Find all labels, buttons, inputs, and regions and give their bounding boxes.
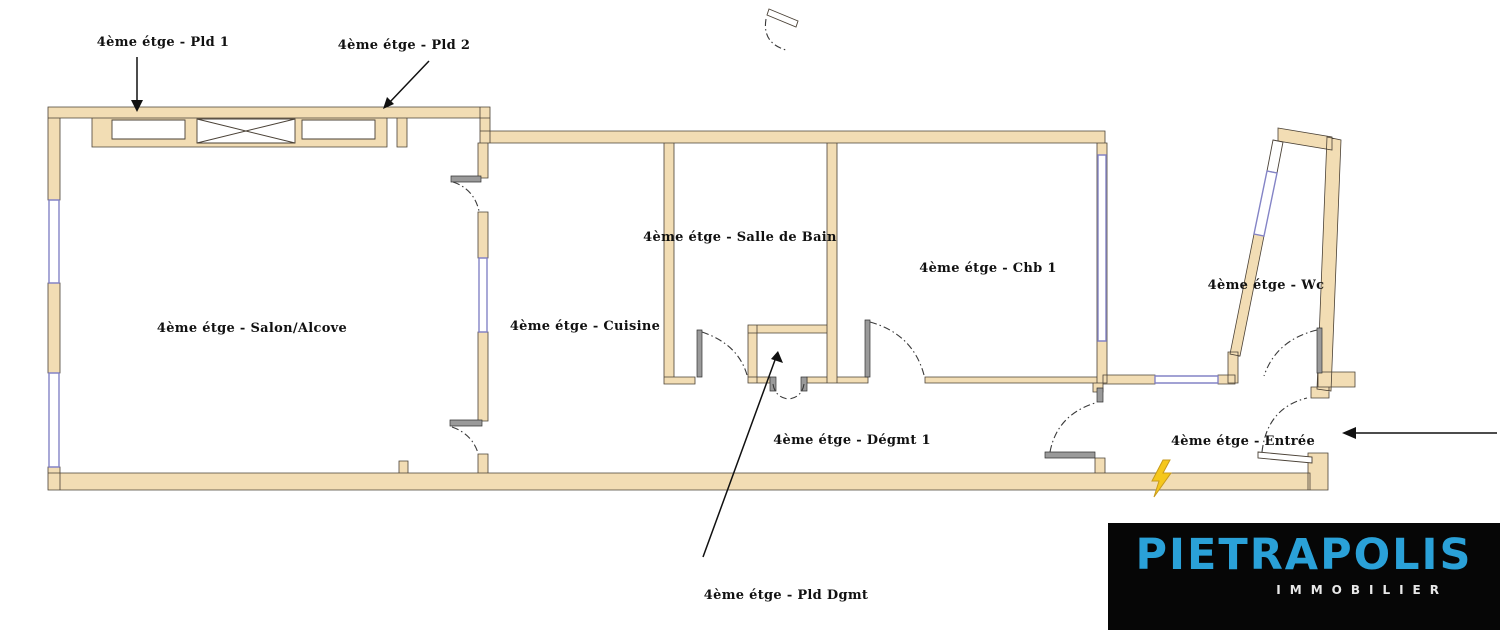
door-swing-icon: [452, 19, 1317, 453]
room-label-chb1: 4ème étge - Chb 1: [919, 261, 1057, 276]
logo: PIETRAPOLIS IMMOBILIER: [1108, 523, 1500, 630]
room-label-entree: 4ème étge - Entrée: [1171, 434, 1315, 449]
room-label-wc: 4ème étge - Wc: [1208, 278, 1325, 293]
room-label-pld-dgmt: 4ème étge - Pld Dgmt: [704, 588, 868, 603]
room-label-salon: 4ème étge - Salon/Alcove: [157, 321, 347, 336]
room-label-cuisine: 4ème étge - Cuisine: [510, 319, 660, 334]
room-label-pld2: 4ème étge - Pld 2: [338, 38, 470, 53]
floor-plan-page: 4ème étge - Pld 1 4ème étge - Pld 2 4ème…: [0, 0, 1500, 641]
window-glazing: [49, 155, 1277, 467]
logo-brand-text: PIETRAPOLIS: [1108, 530, 1500, 580]
annotation-arrow-heads: [131, 97, 1356, 439]
room-label-salle-de-bain: 4ème étge - Salle de Bain: [643, 230, 837, 245]
logo-tagline-text: IMMOBILIER: [1108, 583, 1500, 597]
walls: [48, 107, 1355, 490]
door-leaves: [450, 176, 1322, 458]
room-label-pld1: 4ème étge - Pld 1: [97, 35, 229, 50]
room-label-degmt1: 4ème étge - Dégmt 1: [773, 433, 931, 448]
